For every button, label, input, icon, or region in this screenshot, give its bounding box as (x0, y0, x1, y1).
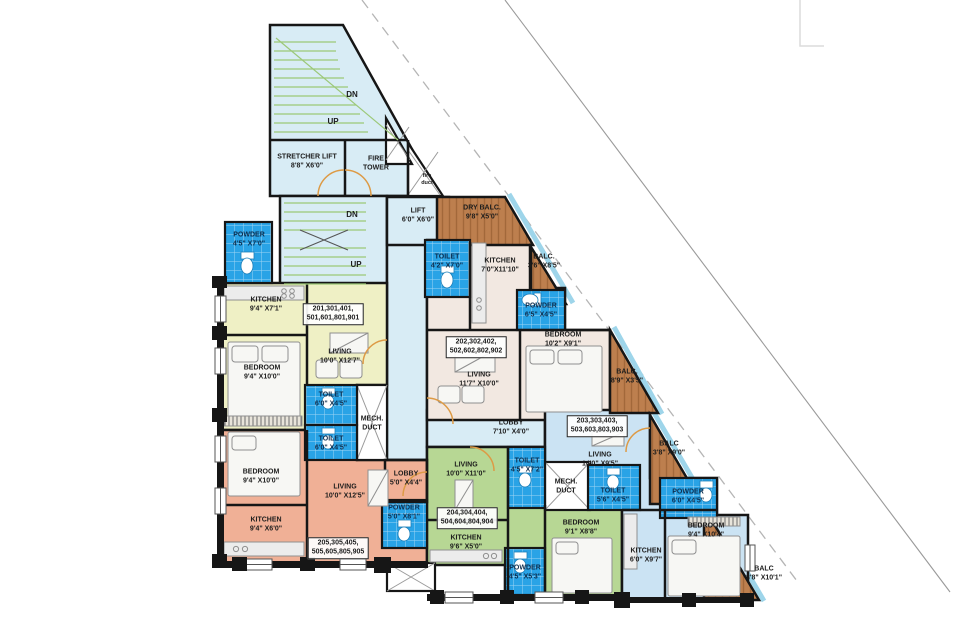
label-bedroom-202: BEDROOM10'2" X9'1" (545, 331, 582, 349)
label-fire-tower: FIRETOWER (363, 155, 389, 173)
wardrobe-icon (224, 416, 302, 426)
unit-numbers-204: 204,304,404,504,604,804,904 (437, 507, 498, 529)
unit-numbers-201: 201,301,401,501,601,801,901 (303, 303, 364, 325)
label-toilet-202: TOILET4'2" X7'0" (431, 253, 463, 271)
label-dry-balcony-202: DRY BALC.9'8" X5'0" (463, 204, 501, 222)
frame-corner-artifact (800, 0, 824, 46)
label-toilet-205: TOILET6'0" X4'5" (315, 435, 347, 453)
bed-icon (552, 538, 612, 593)
label-kitchen-204: KITCHEN9'6" X5'0" (450, 534, 482, 552)
unit-numbers-202: 202,302,402,502,602,802,902 (446, 336, 507, 358)
label-mech-duct-2: MECH.DUCT (555, 478, 578, 496)
bed-icon (526, 346, 602, 412)
floor-plan-canvas: DN UP STRETCHER LIFT8'8" X6'0" FIRETOWER… (0, 0, 957, 625)
floor-plan-drawing (0, 0, 957, 625)
label-lobby-205: LOBBY5'0" X4'4" (390, 470, 422, 488)
label-fire-duct: fireduct (421, 173, 433, 187)
kitchen-counter-icon (224, 542, 304, 556)
bed-icon (228, 342, 300, 426)
label-bedroom-204: BEDROOM9'1" X8'8" (563, 519, 600, 537)
label-mid-lobby: LOBBY7'10" X4'0" (493, 419, 529, 437)
label-living-204: LIVING10'0" X11'0" (446, 461, 486, 479)
tv-unit-icon (455, 480, 473, 510)
label-balcony-202a: BALC.3'6" X8'5" (528, 253, 560, 271)
label-powder-204: POWDER4'5" X5'3" (509, 564, 541, 582)
bed-icon (228, 432, 300, 496)
stairs-up-label: UP (350, 260, 361, 270)
label-kitchen-203: KITCHEN6'0" X9'7" (630, 547, 662, 565)
label-balcony-203b: BALC3'8" X10'1" (746, 565, 782, 583)
label-kitchen-201: KITCHEN9'4" X7'1" (250, 296, 282, 314)
kitchen-counter-icon (472, 243, 486, 323)
stairs-up-label: UP (327, 117, 338, 127)
unit-numbers-203: 203,303,403,503,603,803,903 (567, 415, 628, 437)
label-powder-201: POWDER4'5" X7'0" (233, 231, 265, 249)
label-bedroom-201: BEDROOM9'4" X10'0" (244, 364, 281, 382)
label-balcony-202b: BALC.8'9" X3'5" (611, 368, 643, 386)
label-powder-203: POWDER6'0" X4'5" (672, 488, 704, 506)
label-powder-205: POWDER5'0" X8'1" (388, 504, 420, 522)
label-balcony-203a: BALC3'8" X9'0" (653, 440, 685, 458)
label-bedroom-205: BEDROOM9'4" X10'0" (243, 468, 280, 486)
label-powder-202: POWDER6'5" X4'5" (525, 302, 557, 320)
label-living-202: LIVING11'7" X10'0" (459, 371, 499, 389)
label-toilet-203: TOILET5'6" X4'5" (597, 487, 629, 505)
label-toilet-201: TOILET6'0" X4'5" (315, 391, 347, 409)
label-living-205: LIVING10'0" X12'5" (325, 483, 365, 501)
label-toilet-204: TOILET4'5" X7'2" (511, 457, 543, 475)
tv-unit-icon (368, 470, 388, 506)
label-mech-duct-1: MECH.DUCT (361, 415, 384, 433)
bed-icon (668, 536, 740, 596)
label-lift: LIFT6'0" X6'0" (402, 207, 434, 225)
label-bedroom-203: BEDROOM9'4" X10'4" (688, 522, 725, 540)
label-living-201: LIVING10'0" X12'7" (320, 348, 360, 366)
stairs-dn-label: DN (346, 210, 358, 220)
kitchen-counter-icon (430, 550, 502, 562)
label-living-203: LIVING14'0" X9'5" (582, 451, 618, 469)
unit-numbers-205: 205,305,405,505,605,805,905 (308, 537, 369, 559)
label-stretcher-lift: STRETCHER LIFT8'8" X6'0" (277, 153, 337, 171)
label-kitchen-205: KITCHEN9'4" X6'0" (250, 516, 282, 534)
label-kitchen-202: KITCHEN7'0"X11'10" (481, 257, 519, 275)
stairs-dn-label: DN (346, 90, 358, 100)
